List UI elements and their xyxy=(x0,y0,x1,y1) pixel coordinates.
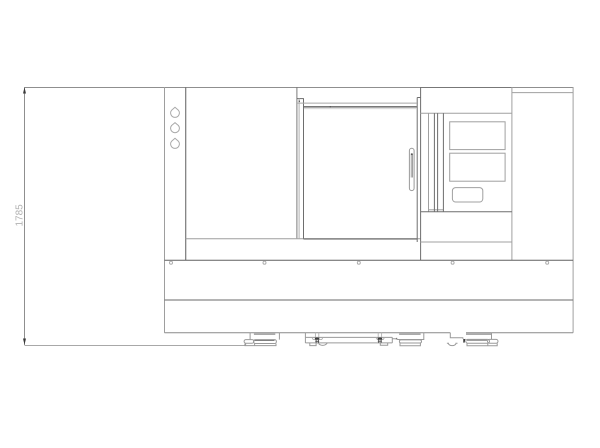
svg-text:1785: 1785 xyxy=(15,204,26,227)
